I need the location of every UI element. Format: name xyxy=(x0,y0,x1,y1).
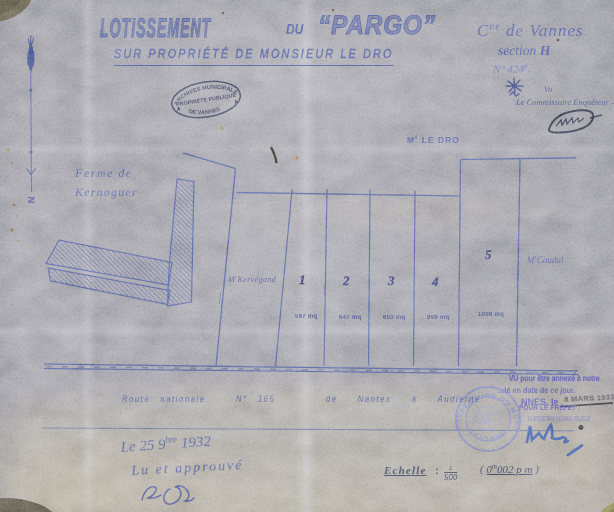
svg-text:43.60: 43.60 xyxy=(341,369,349,373)
svg-text:43.30: 43.30 xyxy=(296,369,304,373)
svg-text:34.20: 34.20 xyxy=(252,368,260,372)
svg-text:43.20: 43.20 xyxy=(385,370,393,374)
svg-text:44.70: 44.70 xyxy=(219,368,227,372)
svg-text:43.85: 43.85 xyxy=(475,370,483,374)
svg-text:45.60: 45.60 xyxy=(430,370,438,374)
svg-text:N: N xyxy=(25,197,36,204)
svg-text:* VANNES *: * VANNES * xyxy=(0,0,508,444)
